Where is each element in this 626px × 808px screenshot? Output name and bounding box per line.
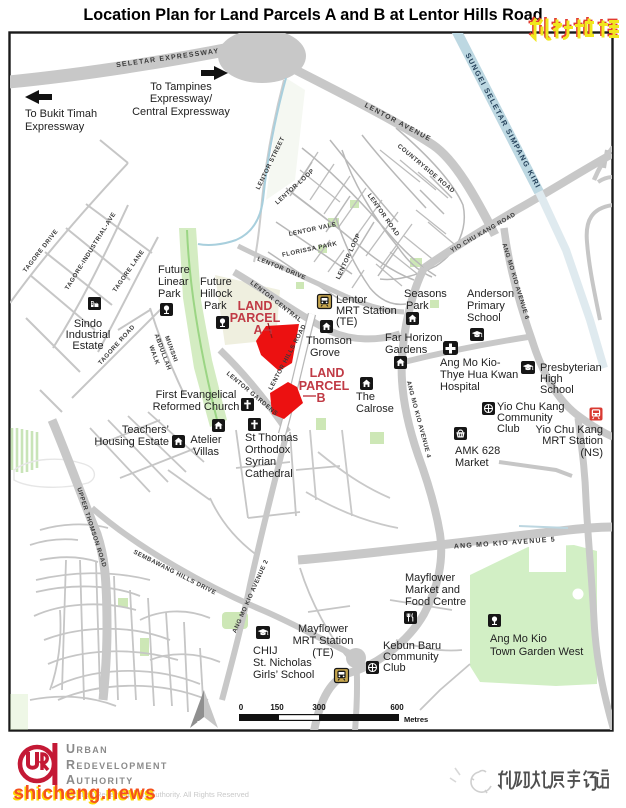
svg-text:Mayflower: Mayflower <box>298 623 348 635</box>
svg-text:N: N <box>197 719 203 729</box>
svg-text:CHIJ: CHIJ <box>253 645 277 657</box>
svg-text:Future: Future <box>158 264 190 276</box>
svg-text:(NS): (NS) <box>580 447 603 459</box>
svg-text:St. Nicholas: St. Nicholas <box>253 657 312 669</box>
svg-text:Seasons: Seasons <box>404 288 447 300</box>
svg-text:(TE): (TE) <box>312 647 333 659</box>
svg-text:Estate: Estate <box>72 340 103 352</box>
svg-text:Ang Mo Kio-: Ang Mo Kio- <box>440 357 501 369</box>
svg-text:Location Plan for Land Parcels: Location Plan for Land Parcels A and B a… <box>83 6 542 24</box>
svg-text:Central Expressway: Central Expressway <box>132 106 230 118</box>
svg-text:A: A <box>253 323 262 337</box>
svg-text:Thomson: Thomson <box>306 335 352 347</box>
svg-text:Park: Park <box>204 300 227 312</box>
svg-text:Atelier: Atelier <box>190 434 222 446</box>
svg-text:St Thomas: St Thomas <box>245 432 298 444</box>
svg-text:B: B <box>316 391 325 405</box>
svg-text:Park: Park <box>158 288 181 300</box>
svg-text:Redevelopment: Redevelopment <box>66 758 168 772</box>
svg-text:School: School <box>467 312 501 324</box>
svg-text:To Bukit Timah: To Bukit Timah <box>25 108 97 120</box>
svg-text:Thye Hua Kwan: Thye Hua Kwan <box>440 369 518 381</box>
svg-text:Cathedral: Cathedral <box>245 468 293 480</box>
svg-text:150: 150 <box>270 703 284 712</box>
svg-text:0: 0 <box>239 703 244 712</box>
svg-text:(TE): (TE) <box>336 316 357 328</box>
svg-text:Anderson: Anderson <box>467 288 514 300</box>
svg-text:Housing Estate: Housing Estate <box>94 436 169 448</box>
svg-text:Park: Park <box>406 300 429 312</box>
svg-text:Club: Club <box>383 662 406 674</box>
svg-text:The: The <box>356 391 375 403</box>
svg-text:Far Horizon: Far Horizon <box>385 332 442 344</box>
svg-text:Hillock: Hillock <box>200 288 233 300</box>
svg-text:To Tampines: To Tampines <box>150 81 212 93</box>
svg-text:MRT Station: MRT Station <box>542 435 603 447</box>
svg-text:Primary: Primary <box>467 300 505 312</box>
svg-text:Hospital: Hospital <box>440 381 480 393</box>
svg-text:School: School <box>540 384 574 396</box>
svg-text:Urban: Urban <box>66 742 108 756</box>
svg-text:Gardens: Gardens <box>385 344 428 356</box>
svg-text:Grove: Grove <box>310 347 340 359</box>
svg-text:First Evangelical: First Evangelical <box>156 389 237 401</box>
svg-text:300: 300 <box>312 703 326 712</box>
svg-text:MRT Station: MRT Station <box>293 635 354 647</box>
svg-text:Metres: Metres <box>404 715 428 724</box>
svg-text:Syrian: Syrian <box>245 456 276 468</box>
svg-text:Calrose: Calrose <box>356 403 394 415</box>
svg-text:Girls’ School: Girls’ School <box>253 669 314 681</box>
svg-text:Market and: Market and <box>405 584 460 596</box>
svg-text:600: 600 <box>390 703 404 712</box>
svg-text:LAND: LAND <box>310 366 345 380</box>
svg-text:Linear: Linear <box>158 276 189 288</box>
svg-text:Reformed Church: Reformed Church <box>153 401 240 413</box>
svg-text:Villas: Villas <box>193 446 220 458</box>
svg-text:Club: Club <box>497 423 520 435</box>
svg-text:AMK 628: AMK 628 <box>455 445 500 457</box>
svg-text:Market: Market <box>455 457 489 469</box>
svg-text:Ang Mo Kio: Ang Mo Kio <box>490 633 547 645</box>
svg-text:shicheng.news: shicheng.news <box>14 783 157 804</box>
svg-text:Expressway: Expressway <box>25 121 85 133</box>
svg-text:Expressway/: Expressway/ <box>150 93 213 105</box>
svg-text:Future: Future <box>200 276 232 288</box>
svg-text:Mayflower: Mayflower <box>405 572 455 584</box>
svg-text:Food Centre: Food Centre <box>405 596 466 608</box>
svg-text:Teachers’: Teachers’ <box>122 424 169 436</box>
svg-text:Orthodox: Orthodox <box>245 444 291 456</box>
svg-text:Town Garden West: Town Garden West <box>490 646 583 658</box>
